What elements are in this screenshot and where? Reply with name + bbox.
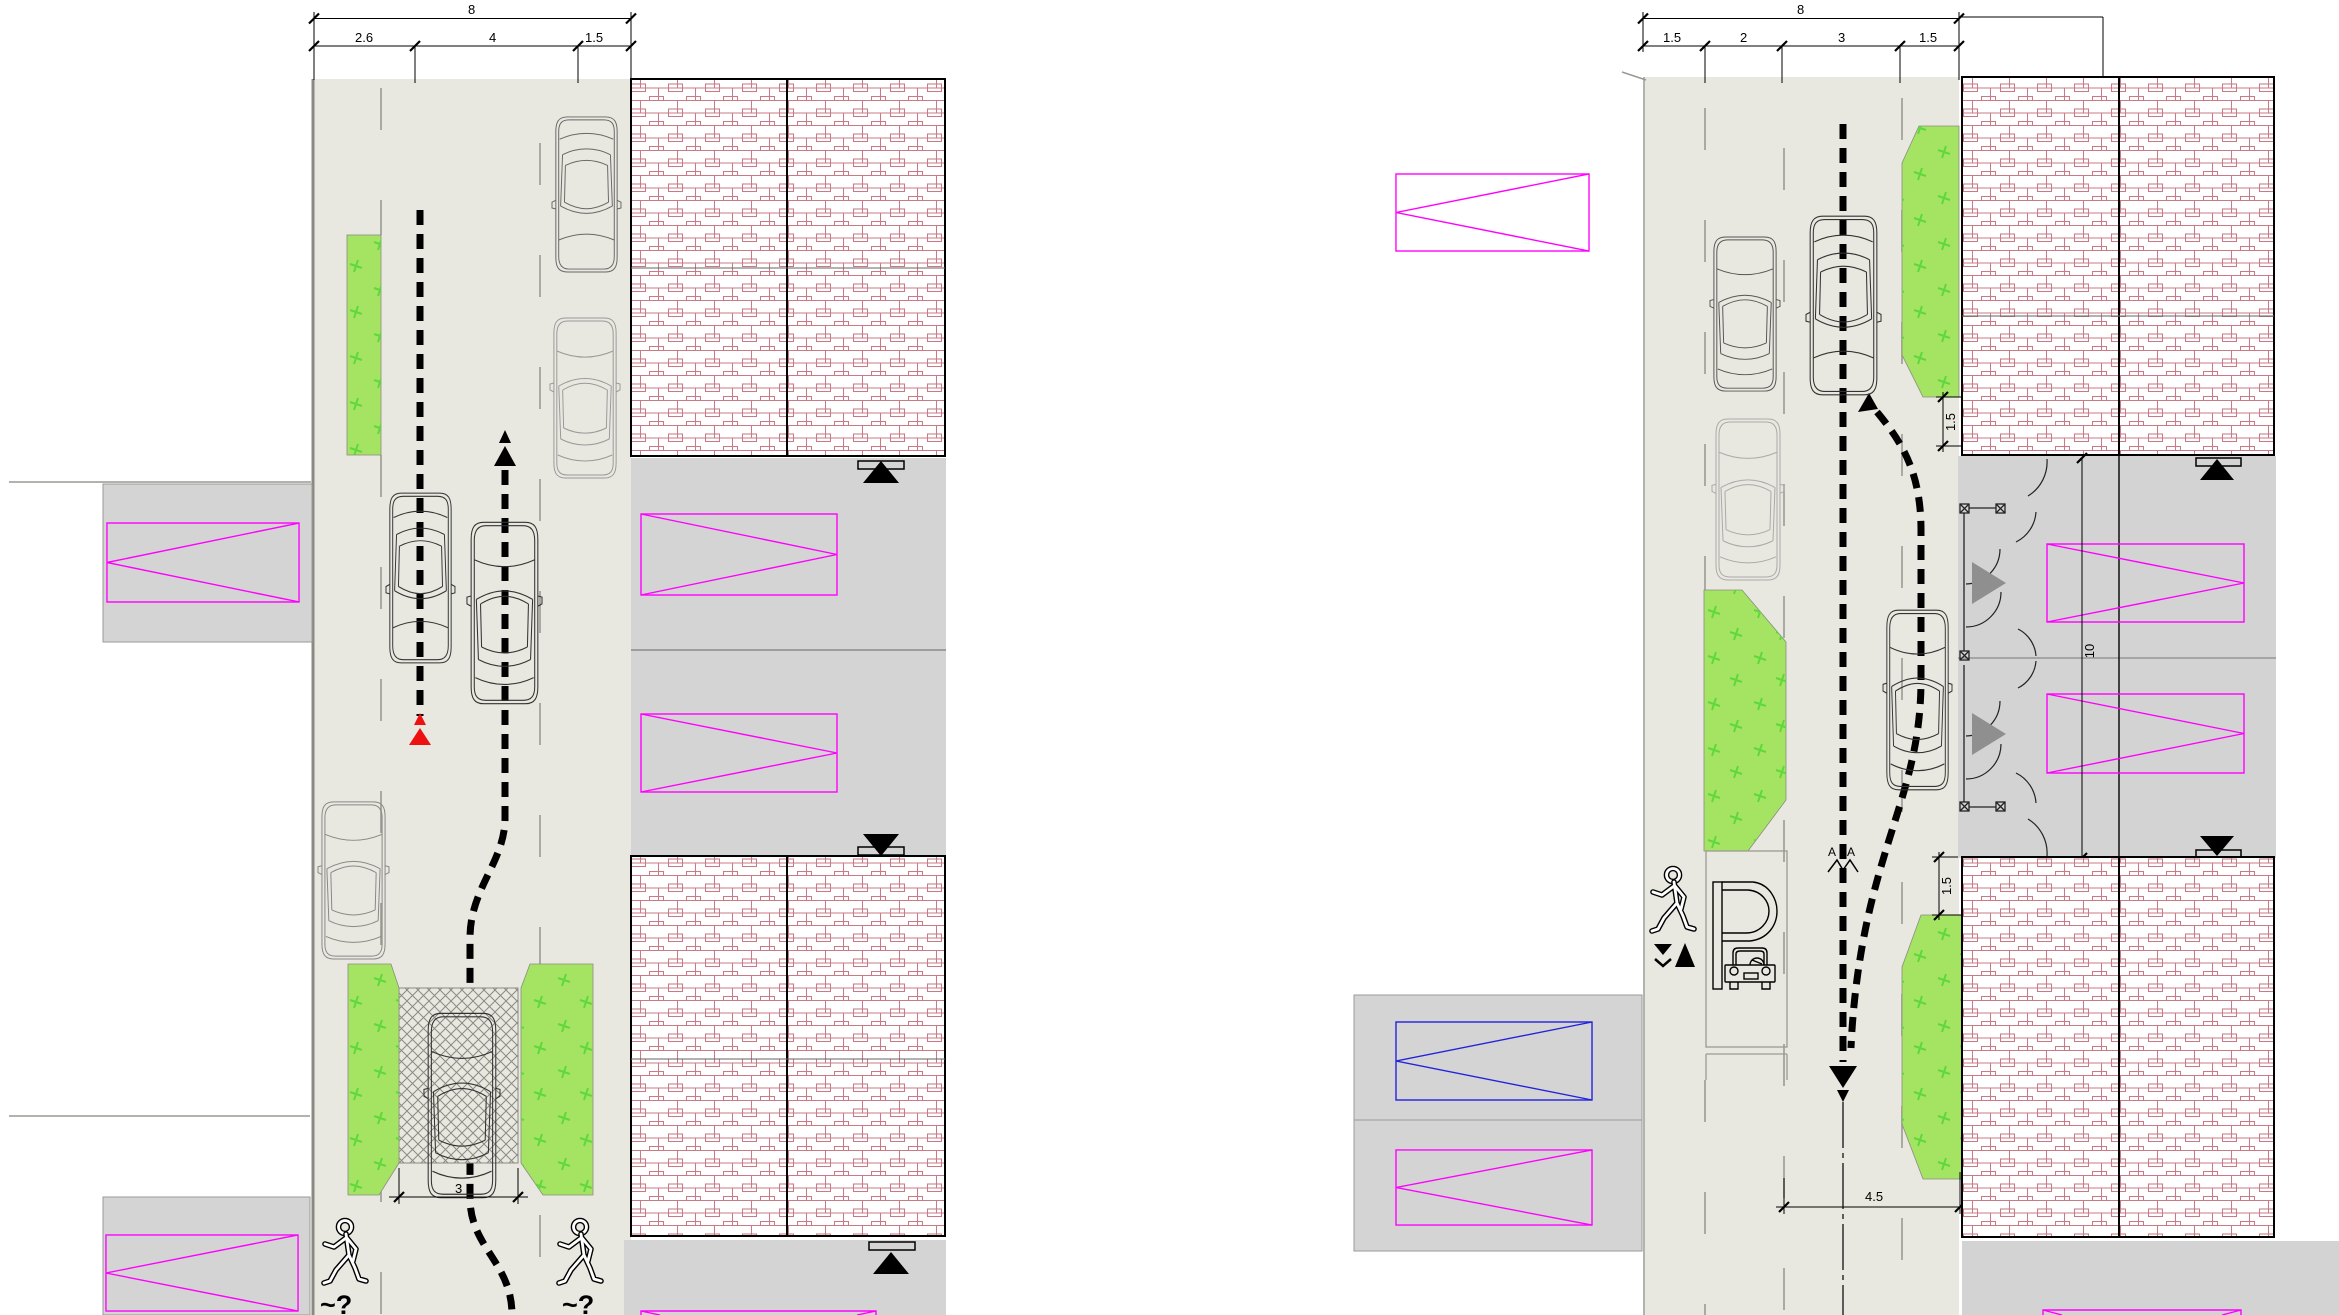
svg-text:1.5: 1.5 xyxy=(1943,413,1958,431)
svg-text:2.6: 2.6 xyxy=(355,30,373,45)
svg-text:8: 8 xyxy=(468,2,475,17)
svg-text:~?: ~? xyxy=(562,1290,594,1315)
svg-text:~?: ~? xyxy=(320,1290,352,1315)
svg-text:A: A xyxy=(1828,845,1836,859)
svg-text:4: 4 xyxy=(489,30,496,45)
svg-text:4.5: 4.5 xyxy=(1865,1189,1883,1204)
svg-text:A: A xyxy=(1847,845,1855,859)
svg-text:1.5: 1.5 xyxy=(1939,877,1954,895)
svg-text:10: 10 xyxy=(2082,644,2097,658)
svg-text:1.5: 1.5 xyxy=(585,30,603,45)
svg-text:3: 3 xyxy=(455,1181,462,1196)
svg-text:8: 8 xyxy=(1797,2,1804,17)
svg-text:3: 3 xyxy=(1838,30,1845,45)
svg-text:2: 2 xyxy=(1740,30,1747,45)
svg-text:1.5: 1.5 xyxy=(1919,30,1937,45)
svg-text:1.5: 1.5 xyxy=(1663,30,1681,45)
